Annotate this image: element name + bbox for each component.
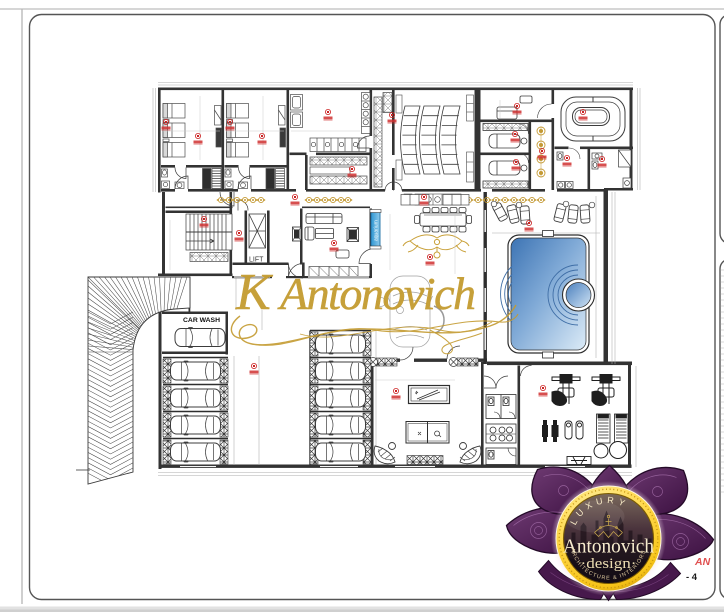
svg-text:Antonovich: Antonovich	[277, 268, 476, 319]
svg-text:AN: AN	[694, 556, 711, 568]
svg-text:LIFT: LIFT	[249, 257, 264, 264]
svg-text:aquarium: aquarium	[374, 220, 380, 241]
svg-text:- 4: - 4	[686, 572, 698, 583]
svg-text:CAR WASH: CAR WASH	[183, 317, 220, 324]
svg-text:K: K	[235, 264, 273, 321]
